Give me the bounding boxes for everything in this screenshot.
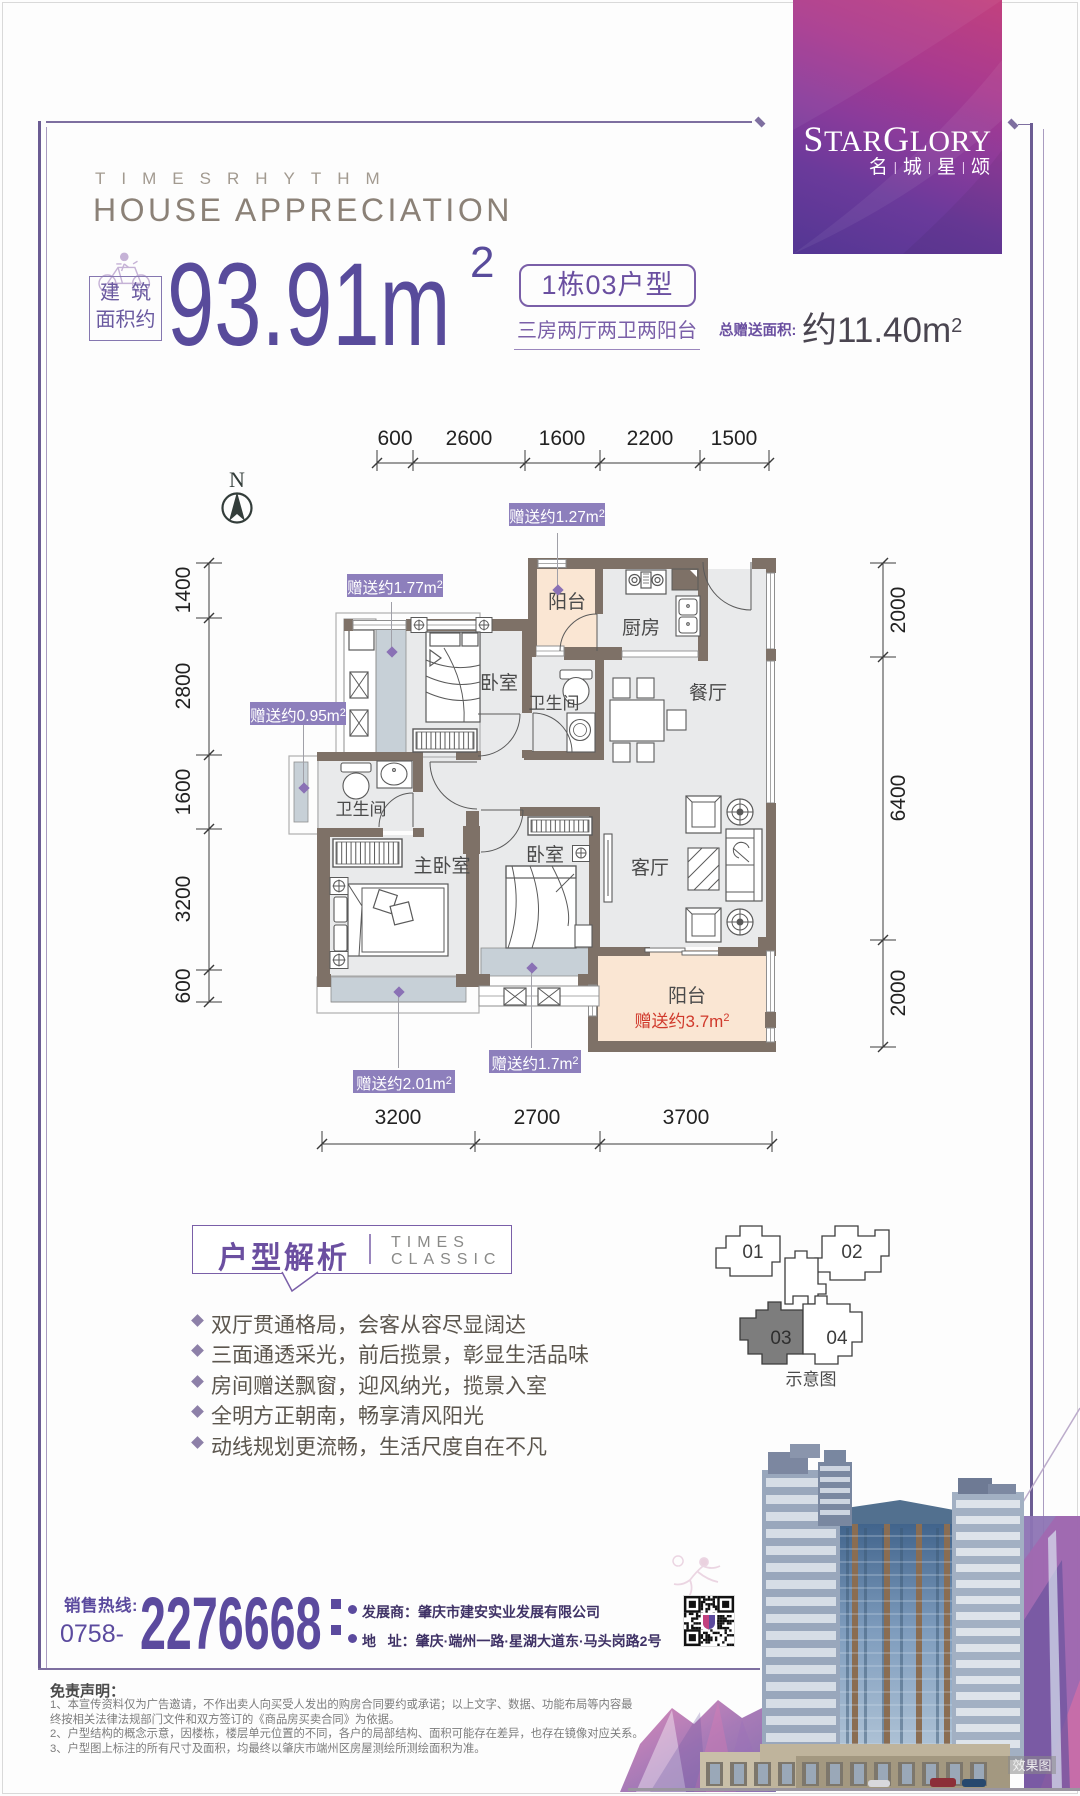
svg-text:600: 600 bbox=[172, 968, 195, 1003]
svg-text:餐厅: 餐厅 bbox=[689, 682, 727, 704]
svg-text:卧室: 卧室 bbox=[526, 844, 564, 866]
svg-text:2000: 2000 bbox=[887, 970, 910, 1017]
svg-text:N: N bbox=[229, 467, 245, 492]
svg-text:示意图: 示意图 bbox=[786, 1370, 837, 1389]
svg-text:2200: 2200 bbox=[627, 427, 674, 450]
svg-text:1600: 1600 bbox=[539, 427, 586, 450]
svg-text:1400: 1400 bbox=[172, 567, 195, 614]
svg-text:3700: 3700 bbox=[663, 1106, 710, 1129]
svg-text:阳台: 阳台 bbox=[668, 985, 706, 1007]
svg-text:卫生间: 卫生间 bbox=[529, 694, 580, 713]
svg-text:3200: 3200 bbox=[172, 876, 195, 923]
svg-text:主卧室: 主卧室 bbox=[413, 855, 470, 877]
svg-text:效果图: 效果图 bbox=[1012, 1758, 1051, 1773]
svg-text:01: 01 bbox=[742, 1242, 763, 1263]
svg-text:1500: 1500 bbox=[711, 427, 758, 450]
svg-text:02: 02 bbox=[841, 1242, 862, 1263]
svg-text:6400: 6400 bbox=[887, 775, 910, 822]
svg-text:阳台: 阳台 bbox=[548, 591, 586, 613]
svg-text:600: 600 bbox=[377, 427, 412, 450]
svg-text:2600: 2600 bbox=[446, 427, 493, 450]
svg-text:2700: 2700 bbox=[514, 1106, 561, 1129]
svg-text:3200: 3200 bbox=[375, 1106, 422, 1129]
svg-text:04: 04 bbox=[826, 1328, 848, 1349]
svg-text:卧室: 卧室 bbox=[480, 672, 518, 694]
svg-text:厨房: 厨房 bbox=[622, 617, 660, 639]
svg-text:客厅: 客厅 bbox=[631, 857, 669, 879]
svg-text:03: 03 bbox=[770, 1328, 791, 1349]
svg-text:赠送约3.7m2: 赠送约3.7m2 bbox=[635, 1012, 730, 1031]
svg-text:1600: 1600 bbox=[172, 769, 195, 816]
svg-text:2800: 2800 bbox=[172, 663, 195, 710]
svg-text:2000: 2000 bbox=[887, 587, 910, 634]
svg-text:卫生间: 卫生间 bbox=[336, 800, 387, 819]
